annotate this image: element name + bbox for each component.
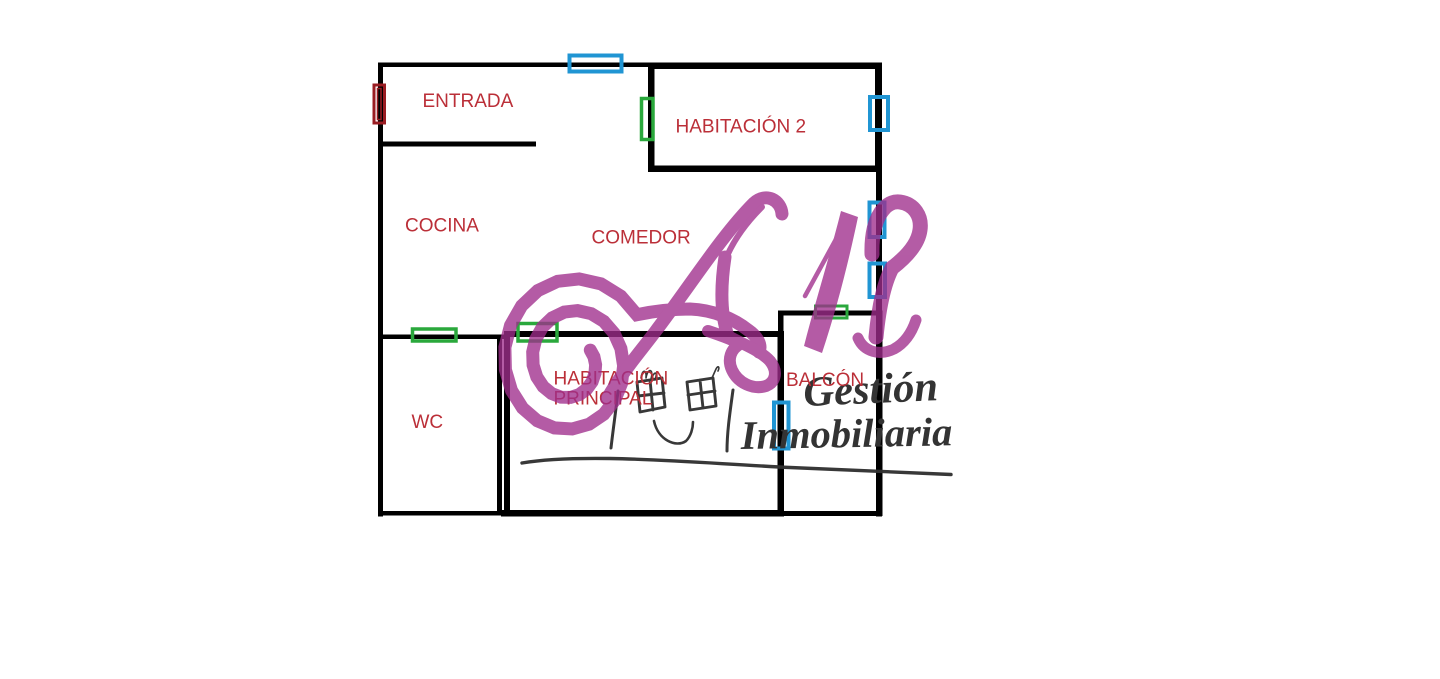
svg-text:WC: WC xyxy=(412,412,444,433)
svg-text:COCINA: COCINA xyxy=(405,216,479,237)
svg-text:COMEDOR: COMEDOR xyxy=(592,228,691,249)
svg-text:ENTRADA: ENTRADA xyxy=(423,91,514,112)
svg-text:HABITACIÓN 2: HABITACIÓN 2 xyxy=(676,116,807,138)
svg-text:BALCÓN: BALCÓN xyxy=(786,369,864,391)
svg-text:Inmobiliaria: Inmobiliaria xyxy=(739,409,952,458)
